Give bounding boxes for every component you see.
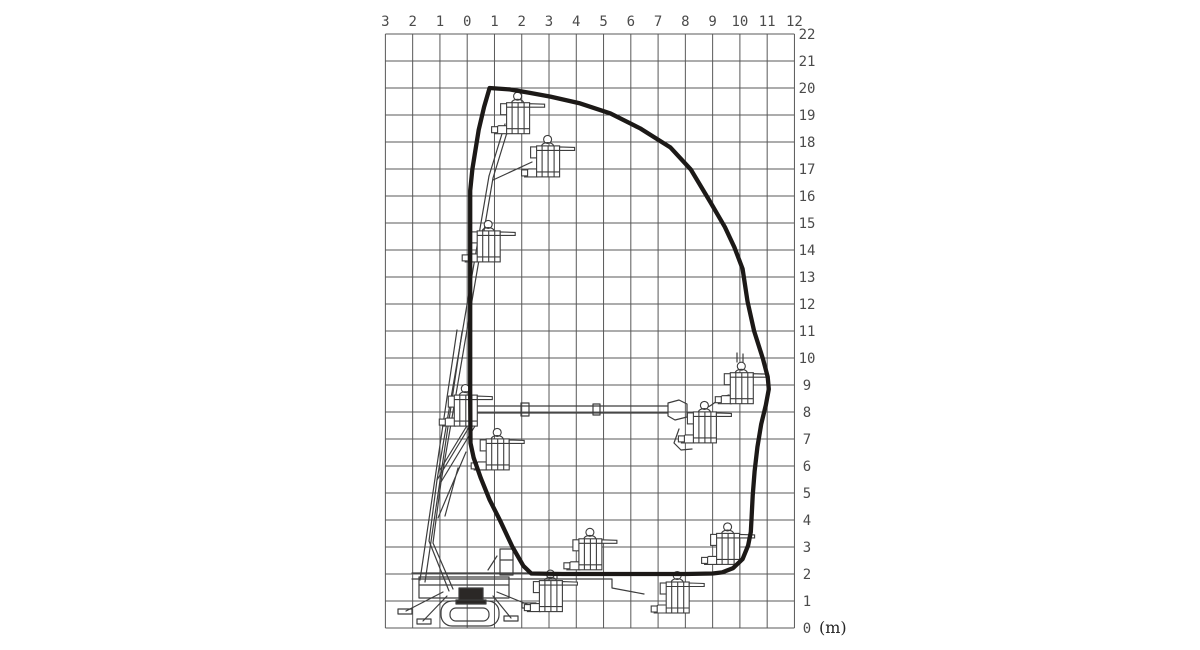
y-axis-label: 8 bbox=[803, 405, 811, 421]
work-platform-icon bbox=[678, 401, 731, 443]
unit-label: (m) bbox=[819, 618, 847, 637]
x-axis-label: 9 bbox=[708, 14, 716, 30]
x-axis-label: 2 bbox=[518, 14, 526, 30]
diagram-page: 3210123456789101112 22212019181716151413… bbox=[0, 0, 1200, 650]
working-envelope-diagram: 3210123456789101112 22212019181716151413… bbox=[0, 0, 1200, 650]
king-post bbox=[500, 549, 513, 575]
work-platform-icon bbox=[564, 528, 617, 570]
x-axis-labels: 3210123456789101112 bbox=[381, 14, 803, 30]
y-axis-label: 20 bbox=[799, 81, 816, 97]
work-platform-icon bbox=[715, 362, 768, 404]
y-axis-label: 6 bbox=[803, 459, 811, 475]
y-axis-label: 1 bbox=[803, 594, 811, 610]
y-axis-label: 11 bbox=[799, 324, 816, 340]
y-axis-label: 16 bbox=[799, 189, 816, 205]
y-axis-label: 13 bbox=[799, 270, 816, 286]
y-axis-label: 4 bbox=[803, 513, 811, 529]
work-platform-icon bbox=[471, 428, 524, 470]
y-axis-labels: 222120191817161514131211109876543210 bbox=[799, 27, 816, 637]
outrigger-foot bbox=[398, 609, 412, 614]
x-axis-label: 8 bbox=[681, 14, 689, 30]
work-platform-icon bbox=[439, 385, 492, 427]
y-axis-label: 21 bbox=[799, 54, 816, 70]
chassis-bar bbox=[456, 600, 486, 604]
y-axis-label: 3 bbox=[803, 540, 811, 556]
y-axis-label: 10 bbox=[799, 351, 816, 367]
y-axis-label: 0 bbox=[803, 621, 811, 637]
x-axis-label: 4 bbox=[572, 14, 580, 30]
boom-end-bracket bbox=[668, 400, 687, 420]
x-axis-label: 6 bbox=[627, 14, 635, 30]
y-axis-label: 12 bbox=[799, 297, 816, 313]
y-axis-label: 22 bbox=[799, 27, 816, 43]
work-platform-icon bbox=[651, 572, 704, 614]
work-platform-icon bbox=[524, 570, 577, 612]
x-axis-label: 3 bbox=[381, 14, 389, 30]
x-axis-label: 3 bbox=[545, 14, 553, 30]
x-axis-label: 11 bbox=[759, 14, 776, 30]
x-axis-label: 1 bbox=[436, 14, 444, 30]
y-axis-label: 19 bbox=[799, 108, 816, 124]
x-axis-label: 1 bbox=[490, 14, 498, 30]
x-axis-label: 7 bbox=[654, 14, 662, 30]
x-axis-label: 5 bbox=[599, 14, 607, 30]
y-axis-label: 9 bbox=[803, 378, 811, 394]
y-axis-label: 17 bbox=[799, 162, 816, 178]
x-axis-label: 2 bbox=[408, 14, 416, 30]
telescopic-boom bbox=[452, 406, 668, 425]
work-platform-icon bbox=[492, 92, 545, 134]
y-axis-label: 5 bbox=[803, 486, 811, 502]
x-axis-label: 10 bbox=[731, 14, 748, 30]
counterweight bbox=[459, 588, 483, 601]
x-axis-label: 0 bbox=[463, 14, 471, 30]
y-axis-label: 14 bbox=[799, 243, 816, 259]
y-axis-label: 18 bbox=[799, 135, 816, 151]
y-axis-label: 15 bbox=[799, 216, 816, 232]
y-axis-label: 2 bbox=[803, 567, 811, 583]
y-axis-label: 7 bbox=[803, 432, 811, 448]
track-inner bbox=[450, 608, 489, 621]
